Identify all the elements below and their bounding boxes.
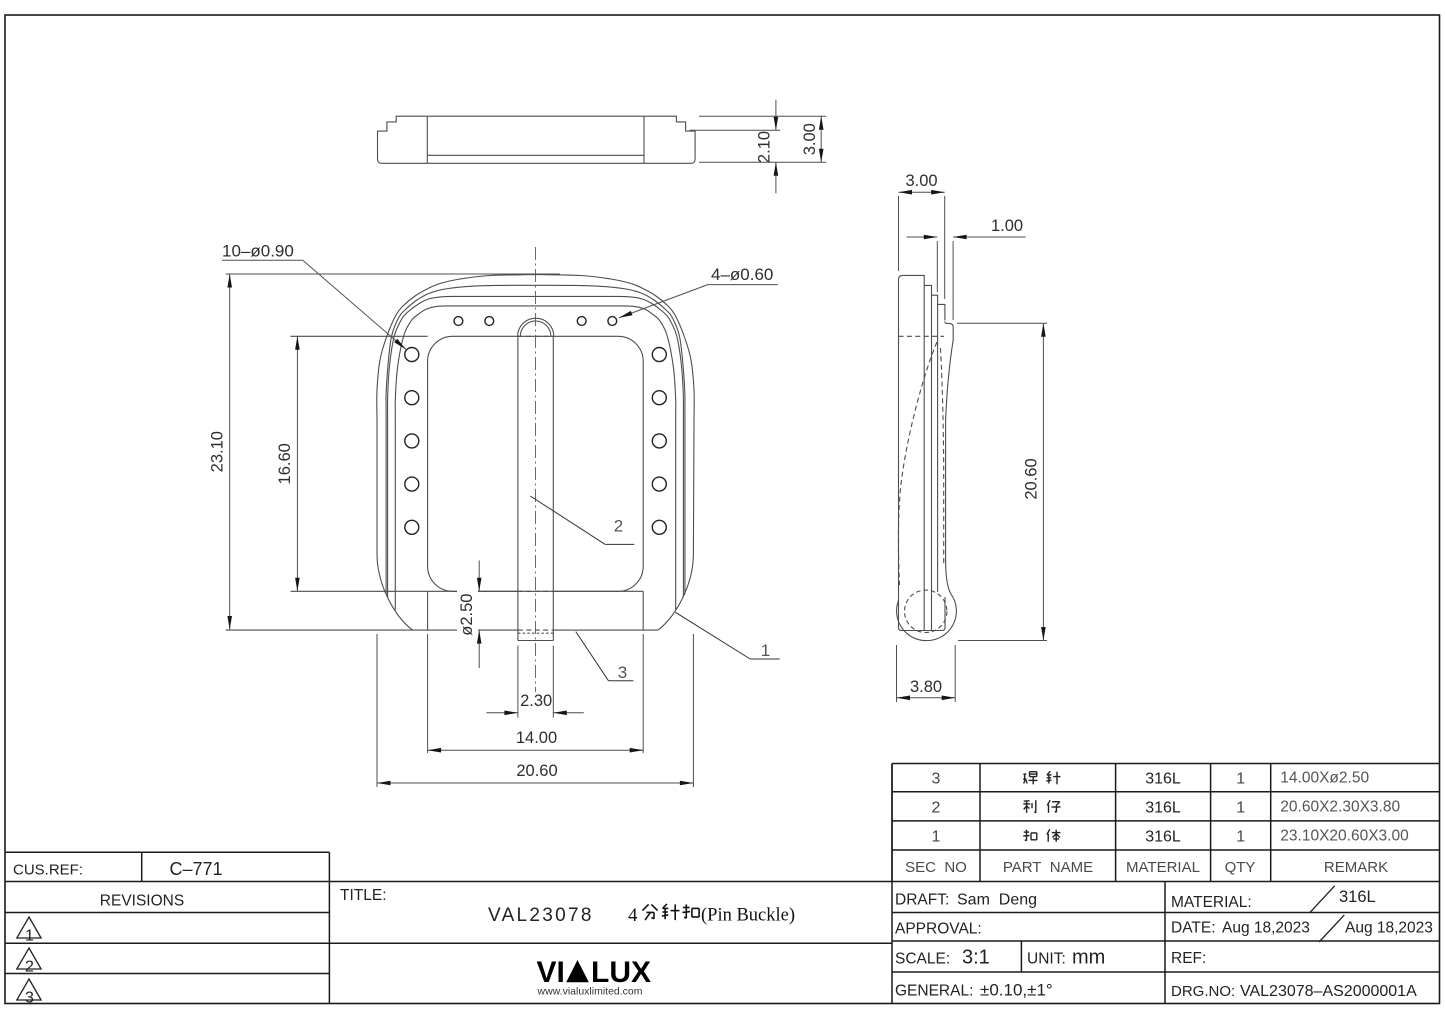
svg-text:20.60: 20.60 (516, 762, 557, 780)
svg-text:2: 2 (25, 959, 34, 976)
svg-text:20.60: 20.60 (1022, 458, 1040, 499)
svg-text:GENERAL:: GENERAL: (895, 983, 973, 1000)
svg-text:1: 1 (932, 829, 941, 846)
svg-text:www.vialuxlimited.com: www.vialuxlimited.com (536, 986, 642, 998)
svg-text:QTY: QTY (1225, 859, 1256, 876)
svg-text:2.10: 2.10 (756, 131, 774, 163)
svg-text:SCALE:: SCALE: (895, 951, 950, 968)
svg-text:UNIT:: UNIT: (1027, 951, 1066, 968)
svg-text:316L: 316L (1339, 888, 1376, 906)
svg-text:1.00: 1.00 (991, 217, 1023, 235)
svg-text:ø2.50: ø2.50 (458, 593, 476, 635)
svg-text:14.00: 14.00 (516, 729, 557, 747)
svg-text:2: 2 (932, 800, 941, 817)
svg-text:DRAFT:: DRAFT: (895, 892, 949, 909)
svg-text:MATERIAL: MATERIAL (1126, 859, 1200, 876)
svg-text:SEC NO: SEC NO (905, 859, 967, 876)
svg-text:3.80: 3.80 (910, 678, 942, 696)
svg-text:LUX: LUX (591, 956, 651, 989)
svg-text:1: 1 (25, 928, 34, 945)
svg-text:1: 1 (1236, 800, 1245, 817)
svg-text:REF:: REF: (1171, 950, 1206, 967)
svg-text:Sam Deng: Sam Deng (957, 892, 1037, 909)
svg-text:316L: 316L (1145, 829, 1181, 846)
svg-text:10–ø0.90: 10–ø0.90 (222, 242, 294, 261)
svg-text:3:1: 3:1 (962, 947, 990, 969)
svg-text:16.60: 16.60 (276, 443, 294, 484)
svg-text:1: 1 (1236, 771, 1245, 788)
svg-text:DATE:: DATE: (1171, 920, 1216, 937)
svg-text:REMARK: REMARK (1324, 859, 1388, 876)
svg-text:Aug 18,2023: Aug 18,2023 (1222, 920, 1310, 937)
svg-text:VAL23078–AS2000001A: VAL23078–AS2000001A (1240, 983, 1417, 1000)
svg-text:mm: mm (1072, 947, 1105, 969)
svg-text:23.10X20.60X3.00: 23.10X20.60X3.00 (1280, 828, 1409, 845)
svg-text:1: 1 (1236, 829, 1245, 846)
svg-text:TITLE:: TITLE: (340, 887, 387, 904)
svg-text:23.10: 23.10 (209, 431, 227, 472)
svg-text:3: 3 (618, 663, 627, 682)
svg-text:MATERIAL:: MATERIAL: (1171, 894, 1252, 911)
svg-text:316L: 316L (1145, 800, 1181, 817)
svg-text:VI: VI (537, 956, 565, 989)
svg-text:3.00: 3.00 (905, 172, 937, 190)
svg-text:3.00: 3.00 (801, 123, 819, 155)
svg-text:REVISIONS: REVISIONS (100, 893, 184, 910)
svg-text:4–ø0.60: 4–ø0.60 (711, 265, 773, 284)
svg-text:1: 1 (761, 641, 770, 660)
svg-text:4: 4 (628, 905, 638, 926)
svg-text:2: 2 (614, 517, 623, 536)
svg-text:14.00Xø2.50: 14.00Xø2.50 (1280, 770, 1369, 787)
svg-text:20.60X2.30X3.80: 20.60X2.30X3.80 (1280, 799, 1400, 816)
svg-text:(Pin Buckle): (Pin Buckle) (701, 906, 795, 926)
svg-text:C–771: C–771 (169, 859, 222, 879)
svg-text:PART NAME: PART NAME (1003, 859, 1093, 876)
svg-text:APPROVAL:: APPROVAL: (895, 921, 982, 938)
svg-text:VAL23078: VAL23078 (488, 905, 594, 926)
svg-text:±0.10,±1°: ±0.10,±1° (980, 981, 1053, 1000)
svg-text:Aug 18,2023: Aug 18,2023 (1345, 920, 1433, 937)
svg-text:CUS.REF:: CUS.REF: (13, 862, 83, 879)
svg-text:3: 3 (932, 771, 941, 788)
svg-text:2.30: 2.30 (520, 692, 552, 710)
svg-text:316L: 316L (1145, 771, 1181, 788)
svg-text:3: 3 (25, 990, 34, 1007)
svg-text:DRG.NO:: DRG.NO: (1171, 983, 1235, 1000)
